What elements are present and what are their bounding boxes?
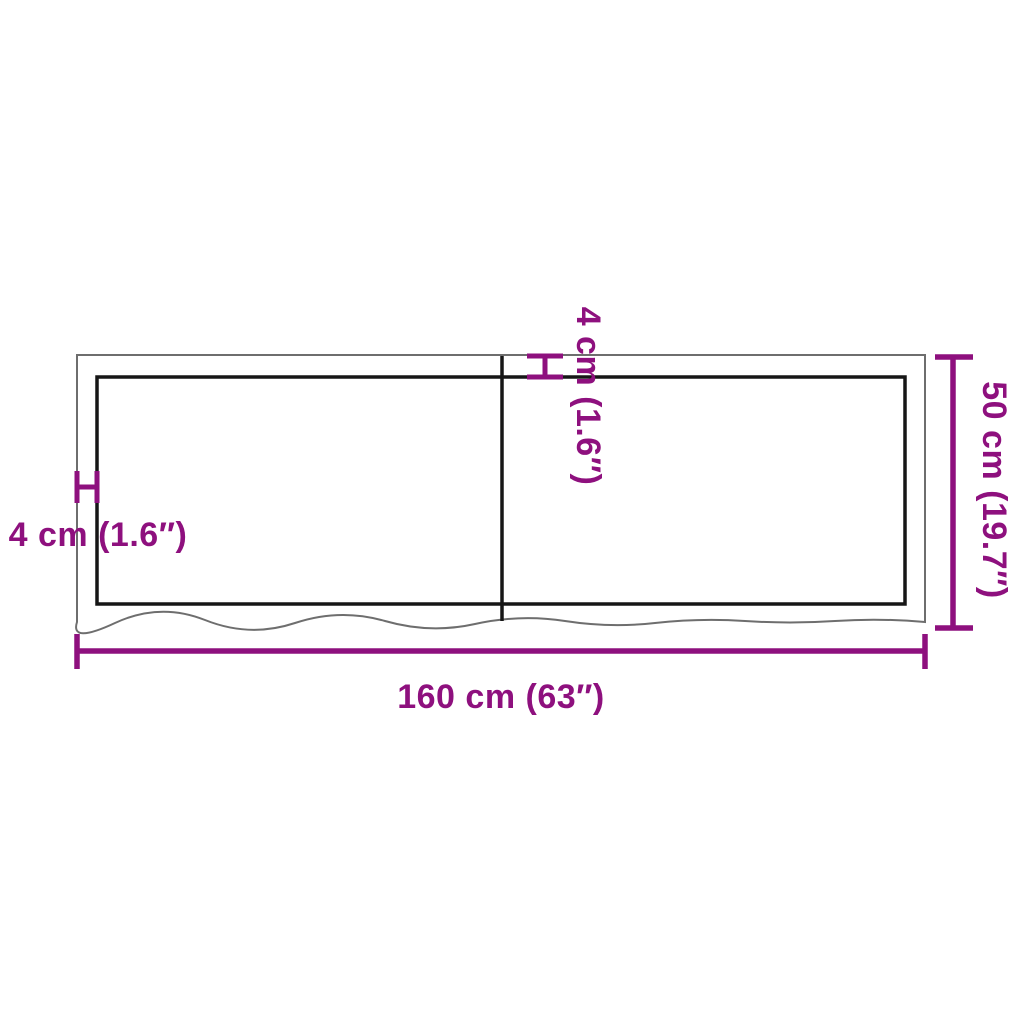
width-dimension-line xyxy=(77,634,925,669)
thickness-left-label: 4 cm (1.6″) xyxy=(9,516,188,554)
thickness-top-label: 4 cm (1.6″) xyxy=(569,307,607,486)
thickness-bracket-left xyxy=(77,471,97,503)
diagram-canvas: 160 cm (63″) 50 cm (19.7″) 4 cm (1.6″) 4… xyxy=(0,0,1024,1024)
dimension-diagram: 160 cm (63″) 50 cm (19.7″) 4 cm (1.6″) 4… xyxy=(0,0,1024,1024)
height-dimension-line xyxy=(935,357,973,628)
width-dimension-label: 160 cm (63″) xyxy=(397,678,605,716)
thickness-bracket-top xyxy=(527,356,563,377)
height-dimension-label: 50 cm (19.7″) xyxy=(975,381,1013,598)
